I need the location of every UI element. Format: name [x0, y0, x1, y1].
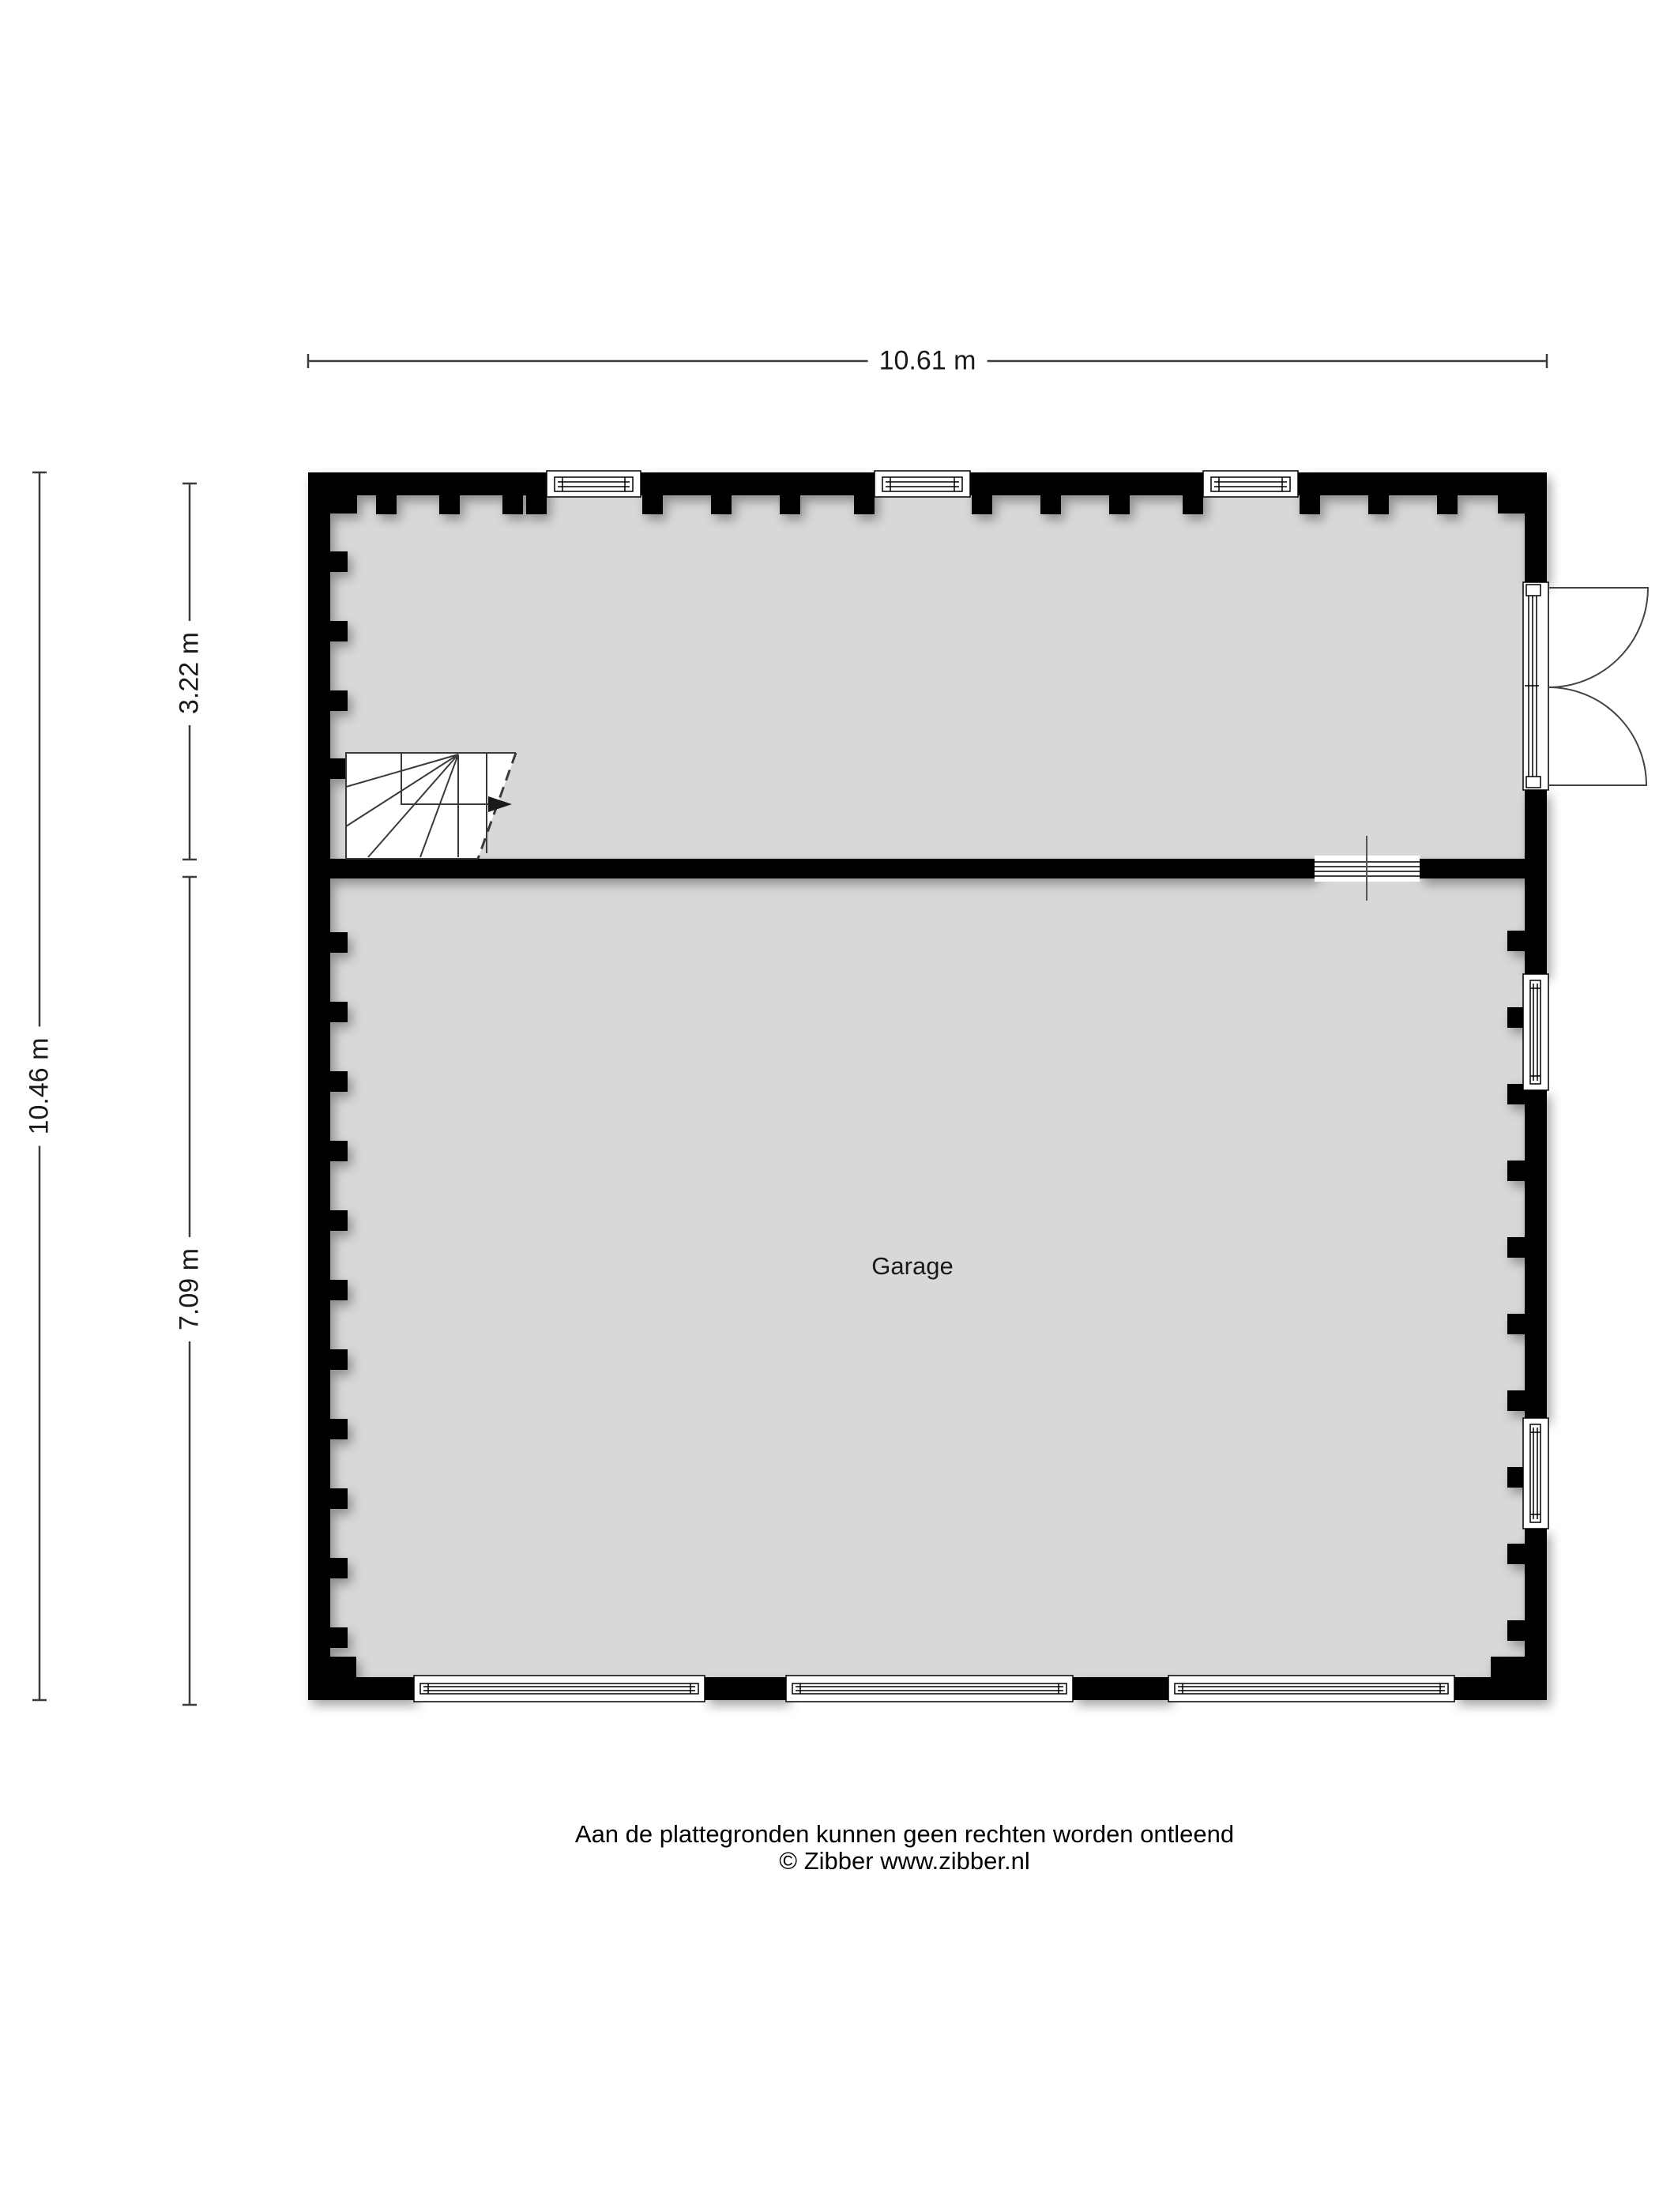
pilaster	[1507, 1390, 1525, 1411]
pilaster	[330, 932, 348, 953]
dimension-label-total-height: 10.46 m	[23, 1027, 55, 1146]
right-wall-seg	[1525, 1529, 1547, 1700]
bottom-wall-seg	[1454, 1677, 1547, 1700]
door-jamb	[1526, 777, 1540, 788]
garage-room-label: Garage	[871, 1252, 953, 1281]
pilaster	[330, 1627, 348, 1648]
pilaster	[330, 758, 348, 779]
window	[1168, 1676, 1454, 1702]
pilaster	[330, 1488, 348, 1509]
pilaster	[1368, 495, 1389, 514]
pilaster	[780, 495, 800, 514]
window	[1523, 1418, 1548, 1529]
top-wall-seg	[641, 472, 875, 495]
interior-wall-seg	[323, 859, 1315, 878]
corner-block	[323, 1657, 356, 1677]
pilaster	[1507, 1084, 1525, 1104]
window	[414, 1676, 705, 1702]
pilaster	[1507, 1620, 1525, 1641]
pilaster	[1437, 495, 1458, 514]
pilaster	[854, 495, 875, 514]
pilaster	[1507, 931, 1525, 951]
floor-plan-drawing	[0, 0, 1659, 2212]
interior-wall-seg	[1420, 859, 1525, 878]
pilaster	[1109, 495, 1130, 514]
floorplan-page: 10.61 m 10.46 m 3.22 m 7.09 m Garage Aan…	[0, 0, 1659, 2212]
pilaster	[330, 1141, 348, 1161]
window	[875, 471, 970, 497]
exterior-double-door	[1523, 582, 1648, 790]
pilaster	[1507, 1007, 1525, 1028]
pilaster	[526, 495, 547, 514]
pilaster	[330, 690, 348, 711]
pilaster	[1507, 1544, 1525, 1564]
window	[1523, 974, 1548, 1090]
room-floors	[323, 490, 1528, 1683]
corner-block	[308, 472, 357, 513]
dimension-label-garage-height: 7.09 m	[173, 1237, 205, 1341]
pilaster	[330, 1002, 348, 1022]
bottom-wall-seg	[705, 1677, 786, 1700]
pilaster	[330, 1280, 348, 1300]
top-wall-seg	[970, 472, 1203, 495]
pilaster	[330, 1071, 348, 1092]
bottom-wall-windows	[414, 1676, 1454, 1702]
pilaster	[376, 495, 397, 514]
pilaster	[642, 495, 663, 514]
pilaster	[711, 495, 732, 514]
pilaster	[502, 495, 523, 514]
right-wall-seg	[1525, 1090, 1547, 1418]
bottom-wall-seg	[1073, 1677, 1168, 1700]
right-wall-seg	[1525, 790, 1547, 974]
left-wall	[308, 472, 330, 1700]
pilaster	[439, 495, 460, 514]
corner-block	[1498, 472, 1547, 513]
door-leaf-swing	[1548, 687, 1646, 785]
pilaster	[330, 1419, 348, 1439]
dimension-label-top-room-height: 3.22 m	[173, 621, 205, 725]
pilaster	[1507, 1237, 1525, 1258]
pilaster	[972, 495, 992, 514]
pilaster	[330, 621, 348, 641]
window	[786, 1676, 1073, 1702]
bottom-wall-seg	[308, 1677, 414, 1700]
pilaster	[1507, 1467, 1525, 1488]
door-leaf-swing	[1548, 588, 1648, 687]
pilaster	[330, 1349, 348, 1370]
footer-copyright: © Zibber www.zibber.nl	[779, 1847, 1029, 1875]
pilaster	[330, 1558, 348, 1578]
pilaster	[1300, 495, 1320, 514]
window	[1203, 471, 1298, 497]
pilaster	[1040, 495, 1061, 514]
door-jamb	[1526, 585, 1540, 596]
pilaster	[1183, 495, 1203, 514]
pilaster	[330, 1210, 348, 1231]
corner-block	[1491, 1657, 1525, 1677]
window	[547, 471, 641, 497]
pilaster	[330, 551, 348, 572]
pilaster	[1507, 1161, 1525, 1181]
pilaster	[1507, 1314, 1525, 1334]
footer-disclaimer: Aan de plattegronden kunnen geen rechten…	[575, 1820, 1234, 1849]
dimension-label-total-width: 10.61 m	[868, 344, 987, 377]
